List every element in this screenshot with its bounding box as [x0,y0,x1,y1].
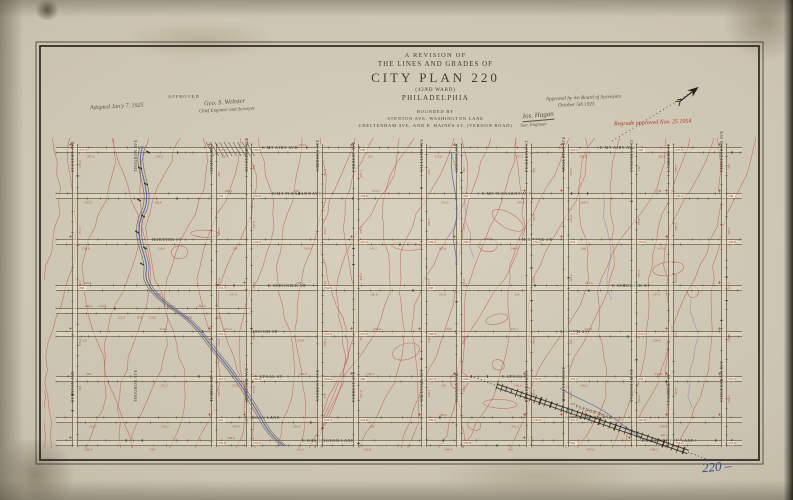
elevation-number: 249.2 [85,304,93,308]
elevation-number: 255.6 [585,281,593,285]
street-vertical: MICHENER AVEMICHENER AVE246247.6249.2250… [244,138,256,447]
street-bed [56,441,742,446]
elevation-number: 236.4 [158,247,166,251]
elevation-number: 241.2 [661,433,669,437]
elevation-number: 238 [232,247,237,251]
street-label: SYDENHAM ST [629,139,634,172]
elevation-number: 244.4 [660,425,668,429]
grade-value: 241.2 [570,418,578,422]
contour-loop [171,245,188,259]
contour-line [316,136,374,448]
elevation-number: 233.2 [462,279,466,287]
elevation-number: 258.8 [579,155,587,159]
elevation-number: 241.2 [511,425,519,429]
grade-value: 239.6 [533,418,541,422]
elevation-number: 236.4 [293,425,301,429]
street-label: PICKERING ST [524,140,529,172]
alt-contour-line [603,192,611,300]
elevation-number: 260.4 [198,304,206,308]
grade-value: 250.8 [218,441,226,445]
elevation-number: 247.6 [230,293,238,297]
elevation-number: 242.8 [363,448,371,452]
elevation-number: 239.6 [514,384,522,388]
elevation-number: 254 [637,166,641,171]
grade-value: 262 [463,194,468,198]
street-label: HORTTER ST [152,237,182,242]
grade-value: 247.6 [360,240,368,244]
title-line-3: CITY PLAN 220 [318,70,553,86]
elevation-number: 231.5 [372,189,380,193]
elevation-number: 249.2 [674,165,678,173]
plan-number-note: 220 – [701,458,732,476]
elevation-number: 236.4 [323,339,327,347]
elevation-number: 231.5 [161,384,169,388]
elevation-number: 244.4 [727,395,731,403]
street-label: E MT PLEASANT AVE [482,191,532,196]
grade-value: 246 [360,377,365,381]
elevation-number: 231.5 [89,425,97,429]
grade-value: 262 [570,441,575,445]
elevation-number: 234.8 [653,339,661,343]
elevation-number: 231.5 [462,223,466,231]
elevation-number: 257.2 [85,201,93,205]
elevation-number: 262 [78,386,82,391]
grade-value: 249.2 [463,377,471,381]
street-label: E SEDGWICK ST [612,283,650,288]
elevation-number: 250.8 [370,293,378,297]
elevation-number: 241.2 [580,384,588,388]
grade-value: 257.2 [728,377,736,381]
elevation-number: 260.4 [225,189,233,193]
elevation-number: 262 [462,167,466,172]
grade-value: 236.4 [428,418,436,422]
contour-loop [491,358,506,372]
elevation-number: 254 [82,339,87,343]
contour-line [401,136,491,448]
diagonal-road-hatch [539,397,542,405]
street-vertical: WILLIAMS AVEWILLIAMS AVE238239.6241.2242… [419,139,431,447]
elevation-number: 250.8 [532,337,536,345]
elevation-number: 250.8 [252,332,256,340]
elevation-number: 252.4 [439,293,447,297]
grade-value: 258.8 [360,194,368,198]
contour-line [164,136,207,448]
elevation-number: 258.8 [154,201,162,205]
grade-value: 252.4 [253,441,261,445]
elevation-number: 236.4 [462,385,466,393]
elevation-number: 262 [294,189,299,193]
elevation-number: 233.2 [441,201,449,205]
elevation-number: 258.8 [297,339,305,343]
elevation-number: 247.6 [252,221,256,229]
title-block: A REVISION OF THE LINES AND GRADES OF CI… [318,52,553,128]
north-arrow-fletch [677,101,682,106]
grade-value: 238 [728,194,733,198]
elevation-number: 255.6 [435,155,443,159]
elevation-number: 241.2 [727,282,731,290]
elevation-number: 236.4 [580,201,588,205]
street-label: E MT AIRY AVE [262,145,298,150]
title-line-1: A REVISION OF [318,52,553,59]
elevation-number: 246 [581,247,586,251]
street-vertical: WOOLSTON AVEWOOLSTON AVE241.2242.8244.42… [561,136,573,447]
street-horizontal: E MT PLEASANT AVEE MT PLEASANT AVE257.22… [56,189,742,205]
elevation-number: 257.2 [78,227,82,235]
elevation-number: 231.5 [323,168,327,176]
grade-value: 262 [79,286,84,290]
street-label: OGONTZ AVE [454,373,459,402]
elevation-number: 247.6 [657,247,665,251]
grade-value: 255.6 [638,240,646,244]
elevation-number: 244.4 [569,274,573,282]
elevation-number: 262 [86,372,91,376]
street-label: CHELTENHAM AVE [719,131,724,172]
grade-value: 258.8 [428,332,436,336]
elevation-number: 255.6 [149,316,157,320]
scanned-plan-sheet: E MT AIRY AVEE MT AIRY AVE247.6249.2250.… [0,0,793,500]
board-approval-note-line2: October 5th 1925 [558,101,595,108]
elevation-number: 257.2 [217,278,221,286]
street-vertical: LAMBERT STLAMBERT ST249.2250.8252.425425… [666,143,678,447]
title-line-4: (42ND WARD) [318,88,553,93]
elevation-number: 234.8 [82,247,90,251]
north-arrow-icon [675,85,699,106]
elevation-number: 257.2 [516,155,524,159]
elevation-number: 236.4 [525,386,533,390]
grade-value: 258.8 [463,441,471,445]
street-label: THOURON AVE [133,369,138,402]
elevation-number: 260.4 [374,327,382,331]
street-label: LAMBERT ST [666,143,671,172]
elevation-number: 239.6 [439,413,447,417]
elevation-number: 244.4 [510,247,518,251]
street-vertical: ANDREWS AVEANDREWS AVE231.5233.2234.8236… [315,139,327,447]
elevation-number: 254 [674,332,678,337]
diagonal-road-tail [688,452,706,459]
street-label: ANDREWS AVE [315,369,320,402]
elevation-number: 247.6 [87,155,95,159]
elevation-number: 255.6 [159,327,167,331]
street-label: TEMPLE RD [209,376,214,402]
contour-loop [489,205,527,235]
elevation-number: 244.4 [427,390,431,398]
street-horizontal: E WASHINGTON LANEE WASHINGTON LANE236.42… [56,436,742,452]
grade-value: 258.8 [728,240,736,244]
elevation-number: 255.6 [78,159,82,167]
grade-value: 252.4 [533,240,541,244]
grade-value: 257.2 [360,332,368,336]
contour-line [612,136,690,448]
elevation-number: 231.5 [510,327,518,331]
grade-value: 231.5 [570,332,578,336]
grade-value: 252.4 [570,377,578,381]
grade-value: 236.4 [675,194,683,198]
elevation-number: 241.2 [296,448,304,452]
elevation-number: 241.2 [369,247,377,251]
street-bed [56,309,252,314]
creek-hatch [143,247,147,249]
grade-value: 244.4 [324,377,332,381]
grade-value: 244.4 [253,240,261,244]
street-label: WILLIAMS AVE [419,139,424,172]
elevation-number: 239.6 [727,227,731,235]
elevation-number: 246 [532,168,536,173]
elevation-number: 249.2 [252,281,256,289]
title-sub-3: CHELTENHAM AVE. AND E. HAINES ST. (VERNO… [318,123,553,128]
grade-value: 233.2 [638,332,646,336]
elevation-number: 262 [447,327,452,331]
contour-group [36,136,756,448]
elevation-number: 250.8 [674,223,678,231]
street-label: WOOLSTON AVE [561,366,566,402]
elevation-number: 241.2 [427,278,431,286]
grade-value: 244.4 [570,148,578,152]
grade-value: 234.8 [728,441,736,445]
grade-value: 252.4 [218,332,226,336]
creek-hatch [135,231,139,233]
elevation-number: 238 [727,164,731,169]
street-vertical: SYDENHAM STSYDENHAM ST254255.6257.2258.8… [629,139,641,447]
elevation-number: 255.6 [674,387,678,395]
grade-value: 241.2 [218,377,226,381]
contour-loop [390,340,421,363]
title-sub-1: BOUNDED BY [318,109,553,114]
street-label: WOOLSTON AVE [561,136,566,172]
grade-value: 254 [218,194,223,198]
grade-value: 231.5 [218,286,226,290]
grade-value: 234.8 [360,418,368,422]
grade-value: 255.6 [324,332,332,336]
elevation-number: 257.2 [653,293,661,297]
grade-value: 247.6 [675,148,683,152]
grade-value: 247.6 [428,377,436,381]
elevation-number: 238 [150,448,155,452]
elevation-number: 233.2 [323,227,327,235]
street-label: STENTON AVE [70,371,75,402]
elevation-number: 242.8 [727,334,731,342]
grade-value: 231.5 [79,148,87,152]
grade-value: 234.8 [324,286,332,290]
title-line-2: THE LINES AND GRADES OF [318,60,553,68]
grade-value: 246 [638,148,643,152]
grade-value: 250.8 [533,377,541,381]
elevation-number: 234.8 [299,372,307,376]
elevation-number: 246 [508,448,513,452]
grade-value: 249.2 [428,240,436,244]
elevation-number: 242.8 [569,215,573,223]
street-label: CHELTENHAM AVE [719,361,724,402]
contour-line [677,136,757,448]
elevation-number: 249.2 [650,448,658,452]
street-vertical: OGONTZ AVEOGONTZ AVE262231.5233.2234.823… [454,143,466,447]
elevation-number: 252.4 [674,275,678,283]
grade-value: 254 [570,240,575,244]
elevation-number: 247.6 [587,448,595,452]
elevation-number: 238 [656,189,661,193]
elevation-number: 260.4 [78,338,82,346]
street-label: SYDENHAM ST [629,369,634,402]
elevation-number: 239.6 [615,418,623,422]
elevation-number: 246 [569,339,573,344]
street-label: OGONTZ AVE [454,143,459,172]
elevation-number: 238 [370,425,375,429]
street-label: THOURON AVE [133,139,138,172]
elevation-number: 236.4 [84,448,92,452]
elevation-number: 262 [216,316,221,320]
street-label: ANDREWS AVE [315,139,320,172]
elevation-number: 242.8 [655,372,663,376]
elevation-number: 233.2 [585,327,593,331]
elevation-number: 254 [368,155,373,159]
contour-line [82,136,116,448]
elevation-number: 255.6 [217,227,221,235]
title-line-5: PHILADELPHIA [318,94,553,102]
street-vertical: FORREST AVEFORREST AVE257.2258.8260.4262… [351,141,363,447]
contour-line [276,136,302,448]
elevation-number: 241.2 [569,168,573,176]
elevation-number: 260.4 [658,155,666,159]
elevation-number: 254 [217,172,221,177]
elevation-number: 260.4 [359,273,363,281]
approved-label: APPROVED [168,94,200,99]
street-vertical: TEMPLE RDTEMPLE RD254255.6257.2258.8260.… [209,144,221,447]
street-label: LAMBERT ST [666,373,671,402]
grade-value: 238 [360,148,365,152]
elevation-number: 250.8 [99,304,107,308]
title-sub-2: STENTON AVE. WASHINGTON LANE [318,116,553,121]
elevation-number: 234.8 [232,425,240,429]
elevation-number: 239.6 [304,247,312,251]
elevation-number: 231.5 [359,390,363,398]
elevation-number: 260.4 [637,395,641,403]
street-label: WILLIAMS AVE [419,369,424,402]
grade-value: 234.8 [253,148,261,152]
street-horizontal: 249.2250.8252.4254255.6257.2258.8260.426… [56,304,252,320]
elevation-number: 239.6 [227,436,235,440]
elevation-number: 244.4 [445,448,453,452]
elevation-number: 249.2 [532,276,536,284]
grade-value: 262 [218,418,223,422]
grade-value: 242.8 [253,377,261,381]
grade-value: 238 [428,286,433,290]
elevation-number: 257.2 [359,170,363,178]
elevation-number: 258.8 [217,339,221,347]
elevation-number: 236.4 [367,372,375,376]
elevation-number: 257.2 [637,269,641,277]
elevation-number: 233.2 [161,425,169,429]
street-label: E WASHINGTON LANE [302,438,354,443]
elevation-number: 238 [323,393,327,398]
elevation-number: 234.8 [462,337,466,345]
grade-value: 233.2 [324,418,332,422]
street-label: TEMPLE RD [209,146,214,172]
grade-value: 250.8 [463,240,471,244]
elevation-number: 254 [514,293,519,297]
elevation-number: 247.6 [532,213,536,221]
elevation-number: 242.8 [439,247,447,251]
elevation-number: 252.4 [252,385,256,393]
elevation-number: 260.4 [217,389,221,397]
grade-value: 242.8 [638,418,646,422]
contour-loop [483,399,517,410]
elevation-number: 258.8 [359,226,363,234]
elevation-number: 238 [441,384,446,388]
elevation-number: 234.8 [517,201,525,205]
elevation-number: 239.6 [427,218,431,226]
elevation-number: 252.4 [118,316,126,320]
street-label: FORREST AVE [351,371,356,402]
elevation-number: 249.2 [296,281,304,285]
elevation-number: 249.2 [156,155,164,159]
contour-line [438,136,515,448]
elevation-number: 238 [570,402,575,406]
elevation-number: 255.6 [637,217,641,225]
elevation-number: 257.2 [224,327,232,331]
grade-value: 254 [638,377,643,381]
elevation-number: 244.4 [84,281,92,285]
elevation-number: 238 [427,169,431,174]
grade-value: 255.6 [253,194,261,198]
elevation-number: 254 [137,316,142,320]
alt-contour-line [688,300,699,408]
street-label: FORREST AVE [351,141,356,172]
elevation-number: 246 [252,164,256,169]
diagonal-road-hatch [624,426,627,434]
elevation-number: 252.4 [299,143,307,147]
contour-loop [485,312,509,326]
